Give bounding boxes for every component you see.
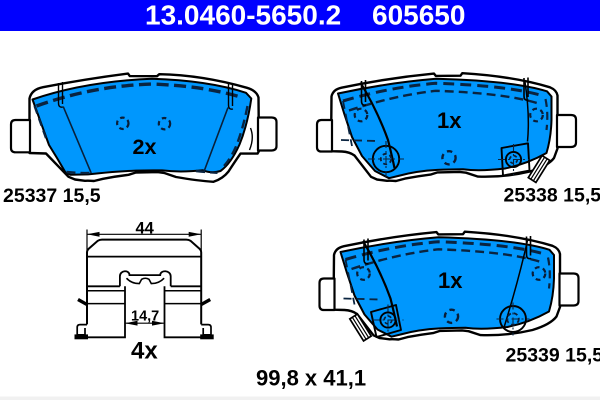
svg-text:44: 44 xyxy=(136,220,155,238)
svg-text:605650: 605650 xyxy=(372,0,465,31)
svg-text:1x: 1x xyxy=(437,108,462,133)
svg-text:2x: 2x xyxy=(133,135,157,159)
svg-text:25337 15,5: 25337 15,5 xyxy=(3,185,101,207)
svg-text:13.0460-5650.2: 13.0460-5650.2 xyxy=(145,0,341,31)
svg-text:1x: 1x xyxy=(438,268,463,293)
svg-text:99,8 x 41,1: 99,8 x 41,1 xyxy=(256,366,366,391)
svg-text:25338 15,5: 25338 15,5 xyxy=(504,185,600,207)
svg-text:4x: 4x xyxy=(131,338,158,365)
svg-text:25339 15,5: 25339 15,5 xyxy=(506,345,600,367)
